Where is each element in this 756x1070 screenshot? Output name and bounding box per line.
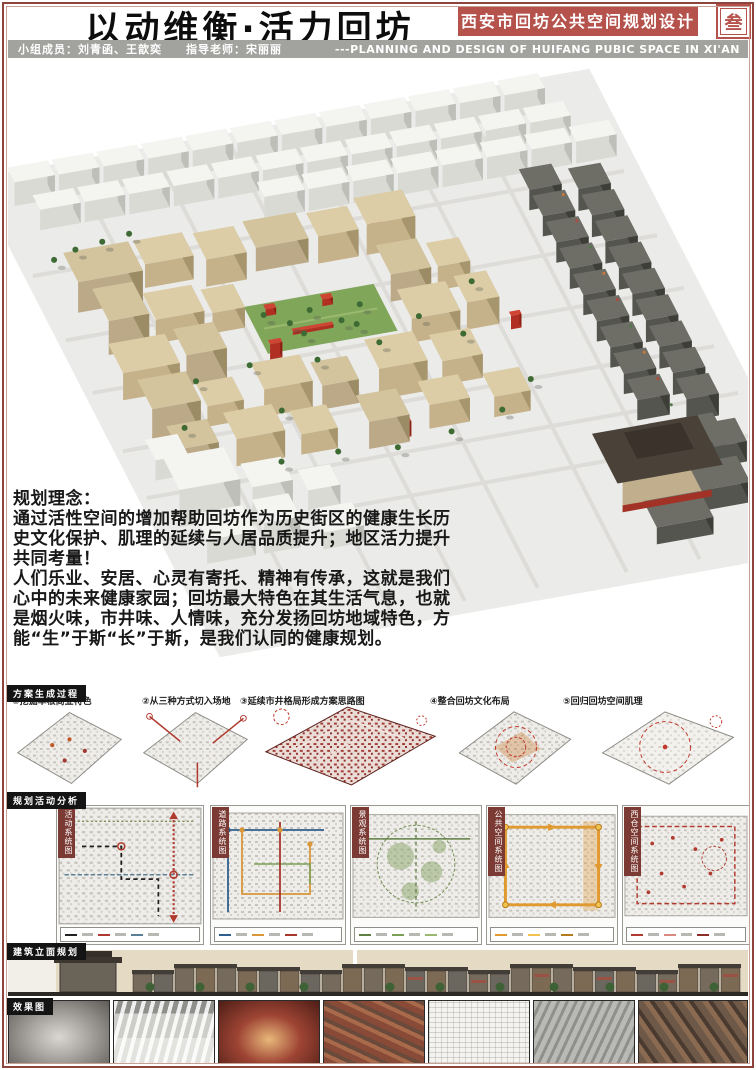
analysis-plan-card-2: 道路系统图 [210,805,346,945]
elevation-section-header: 建筑立面规划 [6,943,86,960]
plan-vertical-label-3: 景观系统图 [352,807,369,858]
process-section-header: 方案生成过程 [6,685,86,702]
process-step-label-4: ④整合回坊文化布局 [430,694,510,707]
project-banner: 西安市回坊公共空间规划设计 [458,7,698,36]
analysis-plan-card-3: 景观系统图 [350,805,482,945]
plan-legend-5 [626,927,746,942]
plan-map-roads [212,807,344,925]
english-subtitle: ---PLANNING AND DESIGN OF HUIFANG PUBIC … [335,43,748,56]
process-step-label-5: ⑤回归回坊空间肌理 [563,694,643,707]
plan-vertical-label-5: 西仓空间系统图 [624,807,641,876]
process-step-diagram-1 [12,706,127,790]
volume-badge: 叁 [716,4,751,39]
render-thumbnail-night-market [218,1000,320,1064]
plan-map-xicang [624,807,748,925]
render-thumbnail-line-sketch [428,1000,530,1064]
process-step-diagram-4 [450,706,580,790]
credits-bar: 小组成员：刘青函、王歆奕 指导老师：宋丽丽 ---PLANNING AND DE… [8,40,748,58]
team-credits: 小组成员：刘青函、王歆奕 指导老师：宋丽丽 [8,41,282,57]
plan-vertical-label-4: 公共空间系统图 [488,807,505,876]
street-elevation-drawing [8,950,748,996]
plan-legend-3 [354,927,478,942]
render-thumbnail-market-aerial [323,1000,425,1064]
concept-text: 规划理念： 通过活性空间的增加帮助回坊作为历史街区的健康生长历史文化保护、肌理的… [13,489,461,649]
analysis-plan-card-4: 公共空间系统图 [486,805,618,945]
plan-legend-4 [490,927,614,942]
analysis-plan-card-1: 活动系统图 [56,805,204,945]
concept-para1: 通过活性空间的增加帮助回坊作为历史街区的健康生长历史文化保护、肌理的延续与人居品… [13,509,461,569]
renders-section-header: 效果图 [6,998,53,1015]
process-step-diagram-2 [138,706,253,790]
street-elevation-canvas [8,950,748,996]
process-step-label-2: ②从三种方式切入场地 [142,694,231,707]
poster-sheet: 以动维衡·活力回坊 西安市回坊公共空间规划设计 叁 小组成员：刘青函、王歆奕 指… [0,0,756,1070]
plan-legend-2 [214,927,342,942]
plan-legend-1 [60,927,200,942]
process-step-diagram-5 [593,706,743,790]
plan-map-public-space [488,807,616,925]
plan-map-activity [58,807,202,925]
concept-heading: 规划理念： [13,489,461,509]
process-step-label-3: ③延续市井格局形成方案思路图 [240,694,365,707]
plan-vertical-label-2: 道路系统图 [212,807,229,858]
render-thumbnail-gray-aerial [533,1000,635,1064]
render-thumbnail-roofscape [638,1000,748,1064]
analysis-plan-card-5: 西仓空间系统图 [622,805,750,945]
analysis-section-header: 规划活动分析 [6,792,86,809]
render-thumbnail-aerial-model [113,1000,215,1064]
plan-vertical-label-1: 活动系统图 [58,807,75,858]
plan-map-landscape [352,807,480,925]
process-step-diagram-3 [258,700,443,792]
concept-para2: 人们乐业、安居、心灵有寄托、精神有传承，这就是我们心中的未来健康家园；回坊最大特… [13,569,461,649]
